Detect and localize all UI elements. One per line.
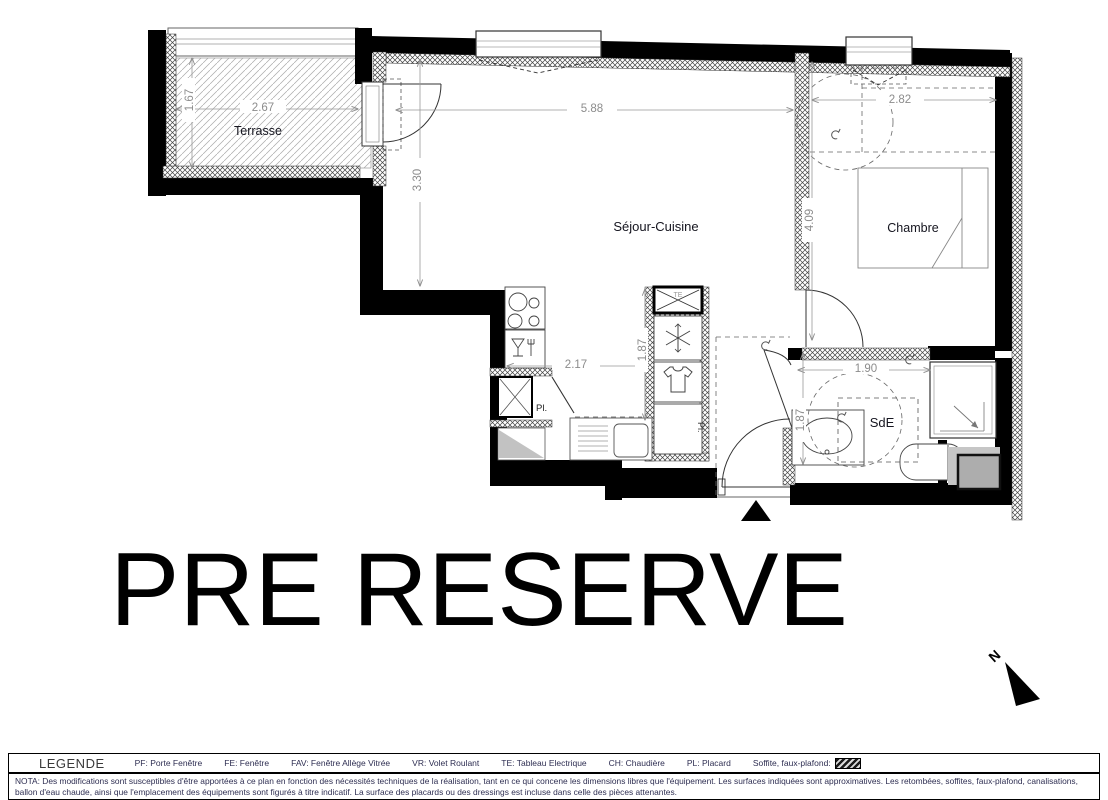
terrace-roller-shutter <box>168 28 358 56</box>
nota-box: NOTA: Des modifications sont susceptible… <box>8 773 1100 800</box>
dim-sejour-width: 5.88 <box>581 103 603 115</box>
entry-door <box>717 419 790 497</box>
closet-right: Pl. <box>654 404 706 454</box>
entrance-marker <box>741 500 771 521</box>
chambre-window <box>846 37 912 85</box>
nota-text: NOTA: Des modifications sont susceptible… <box>15 776 1078 797</box>
dim-chambre-width: 2.82 <box>889 94 911 106</box>
legend-item-fav: FAV: Fenêtre Allège Vitrée <box>291 758 390 768</box>
legend-bar: LEGENDE PF: Porte Fenêtre FE: Fenêtre FA… <box>8 753 1100 773</box>
wall-joint-gap <box>995 351 1012 358</box>
dim-cuisine-width: 2.17 <box>565 359 587 371</box>
washing-machine-slot <box>654 362 702 402</box>
cable-outlet-symbols <box>761 129 917 423</box>
legend-item-vr: VR: Volet Roulant <box>412 758 479 768</box>
kitchen-base-cabinet <box>498 428 545 460</box>
floor-plan-drawing: TE Pl. Pl. <box>0 0 1108 800</box>
room-label-sde: SdE <box>870 415 895 430</box>
closet-right-label: Pl. <box>696 422 706 433</box>
dim-cuisine-depth: 1.87 <box>637 339 649 361</box>
fridge <box>654 316 702 360</box>
electrical-panel: TE <box>654 287 702 313</box>
legend-title: LEGENDE <box>39 756 105 771</box>
technical-shaft <box>948 447 1000 489</box>
north-arrow-pointer <box>1005 662 1040 706</box>
kitchen-sink-counter <box>570 418 652 460</box>
room-label-terrasse: Terrasse <box>234 124 282 138</box>
dim-chambre-depth: 4.09 <box>804 209 816 231</box>
te-label: TE <box>674 292 683 299</box>
legend-item-fe: FE: Fenêtre <box>224 758 269 768</box>
terrace-door <box>362 79 441 150</box>
cooktop <box>505 287 545 329</box>
legend-item-te: TE: Tableau Electrique <box>501 758 586 768</box>
room-label-sejour-cuisine: Séjour-Cuisine <box>613 219 698 234</box>
sde-door <box>764 350 792 428</box>
closet-left-label: Pl. <box>536 403 547 414</box>
floor-plan-page: TE Pl. Pl. <box>0 0 1108 800</box>
dim-sde-depth: 1.87 <box>795 409 807 431</box>
dim-terrasse-depth: 1.67 <box>184 89 196 111</box>
north-label: N <box>985 647 1003 666</box>
shower <box>930 362 996 438</box>
legend-item-pf: PF: Porte Fenêtre <box>135 758 203 768</box>
dim-sejour-depth: 3.30 <box>412 169 424 191</box>
closet-left: Pl. <box>498 377 642 417</box>
bed <box>858 168 988 268</box>
bedroom-door <box>806 290 863 347</box>
legend-item-ch: CH: Chaudière <box>609 758 665 768</box>
legend-item-pl: PL: Placard <box>687 758 731 768</box>
dim-terrasse-width: 2.67 <box>252 102 274 114</box>
dishwasher <box>505 330 545 368</box>
watermark-text: PRE RESERVE <box>110 538 848 642</box>
soffite-hatch-swatch <box>835 758 861 769</box>
room-label-chambre: Chambre <box>887 221 938 235</box>
north-arrow: N <box>985 647 1040 706</box>
legend-soffite: Soffite, faux-plafond: <box>753 758 861 769</box>
dim-sde-width: 1.90 <box>855 363 877 375</box>
legend-soffite-label: Soffite, faux-plafond: <box>753 758 831 768</box>
